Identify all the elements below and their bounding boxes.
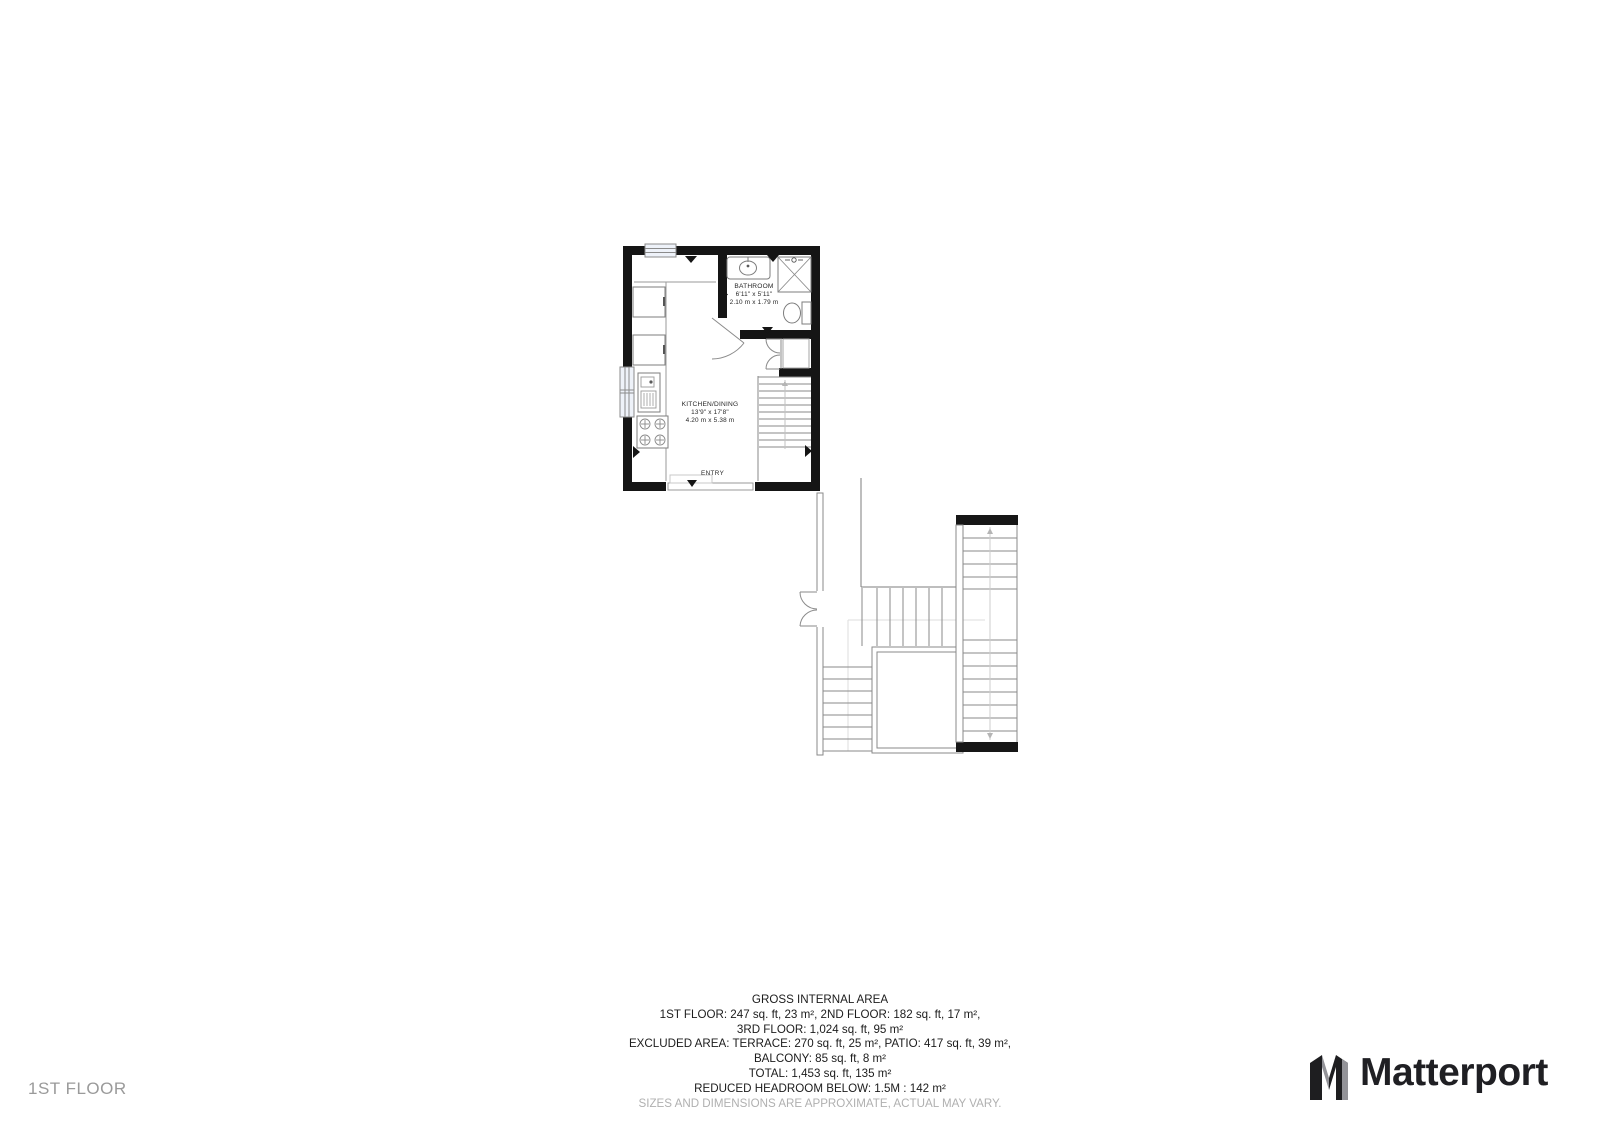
window-left bbox=[620, 367, 634, 417]
summary-line: EXCLUDED AREA: TERRACE: 270 sq. ft, 25 m… bbox=[470, 1037, 1170, 1052]
direction-arrow-up bbox=[987, 528, 993, 534]
closet-doors bbox=[766, 338, 809, 369]
window-top bbox=[645, 244, 676, 257]
area-summary: GROSS INTERNAL AREA 1ST FLOOR: 247 sq. f… bbox=[470, 993, 1170, 1111]
bathroom-label: BATHROOM 6'11" x 5'11" 2.10 m x 1.79 m bbox=[706, 283, 802, 308]
kitchen-cabinet-1 bbox=[633, 287, 665, 317]
kitchen-dims-metric: 4.20 m x 5.38 m bbox=[655, 417, 765, 425]
kitchen-cabinet-2 bbox=[633, 335, 665, 365]
summary-line: BALCONY: 85 sq. ft, 8 m² bbox=[470, 1052, 1170, 1067]
floor-label: 1ST FLOOR bbox=[28, 1079, 127, 1099]
kitchen-dining-name: KITCHEN/DINING bbox=[655, 401, 765, 409]
floorplan-page: BATHROOM 6'11" x 5'11" 2.10 m x 1.79 m K… bbox=[0, 0, 1600, 1131]
matterport-wordmark: Matterport bbox=[1360, 1051, 1548, 1095]
bathroom-sink-fixture bbox=[727, 257, 770, 279]
stair-railing bbox=[861, 478, 956, 587]
entry-threshold bbox=[666, 475, 755, 492]
summary-line: TOTAL: 1,453 sq. ft, 135 m² bbox=[470, 1067, 1170, 1082]
summary-disclaimer: SIZES AND DIMENSIONS ARE APPROXIMATE, AC… bbox=[470, 1097, 1170, 1112]
hall-double-door bbox=[800, 592, 817, 626]
entry-label: ENTRY bbox=[701, 470, 724, 477]
bathroom-dims-metric: 2.10 m x 1.79 m bbox=[706, 299, 802, 307]
winder-treads bbox=[862, 588, 942, 646]
stair-void bbox=[872, 647, 963, 753]
bathroom-dims-imperial: 6'11" x 5'11" bbox=[706, 291, 802, 299]
bathroom-name: BATHROOM bbox=[706, 283, 802, 291]
summary-line: REDUCED HEADROOM BELOW: 1.5M : 142 m² bbox=[470, 1082, 1170, 1097]
kitchen-dims-imperial: 13'9" x 17'8" bbox=[655, 409, 765, 417]
matterport-logo: Matterport bbox=[1310, 1052, 1580, 1102]
direction-arrow-down bbox=[987, 733, 993, 739]
floor-plan-drawing bbox=[0, 0, 1600, 1131]
summary-line: 3RD FLOOR: 1,024 sq. ft, 95 m² bbox=[470, 1023, 1170, 1038]
right-flight bbox=[956, 515, 1018, 752]
stair-structure bbox=[800, 478, 1018, 755]
matterport-icon bbox=[1310, 1052, 1348, 1100]
summary-line: 1ST FLOOR: 247 sq. ft, 23 m², 2ND FLOOR:… bbox=[470, 1008, 1170, 1023]
summary-title: GROSS INTERNAL AREA bbox=[470, 993, 1170, 1008]
kitchen-dining-label: KITCHEN/DINING 13'9" x 17'8" 4.20 m x 5.… bbox=[655, 401, 765, 426]
bathroom-door bbox=[712, 318, 744, 359]
internal-staircase bbox=[758, 376, 811, 481]
